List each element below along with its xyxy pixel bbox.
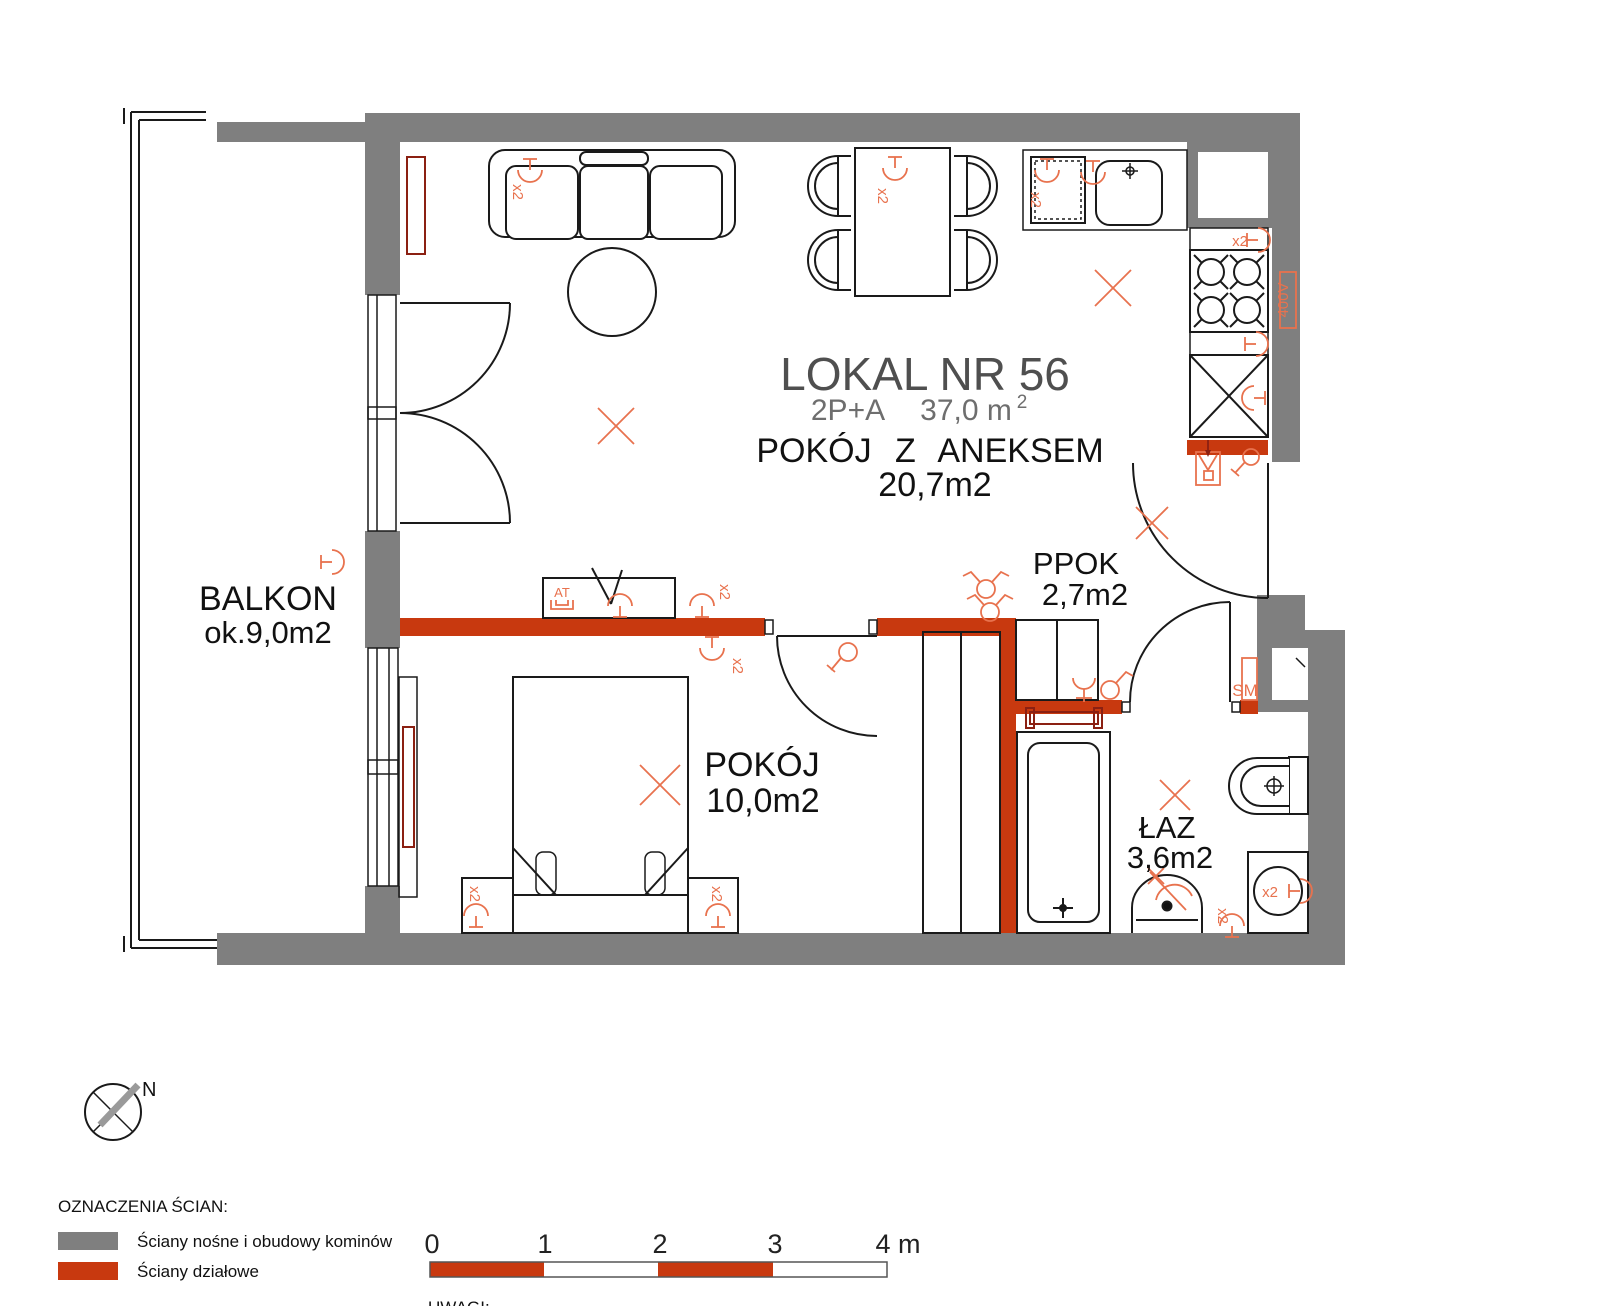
socket-icon (321, 550, 344, 574)
junction-icon (967, 595, 1013, 621)
socket-label: x2 (716, 584, 733, 600)
burner-icon (1230, 293, 1264, 327)
room-label-balkon: BALKON (199, 580, 337, 618)
scale-segment (658, 1262, 773, 1277)
unit-area-sup: 2 (1017, 392, 1028, 413)
radiator-bedroom (399, 677, 417, 897)
light-point-icon (1136, 507, 1168, 539)
socket-icon (1245, 332, 1268, 356)
radiator-bathroom (1026, 708, 1102, 728)
room-area-pokoj: 10,0m2 (706, 782, 819, 820)
socket-label: x2 (1262, 884, 1278, 901)
bed (513, 677, 688, 933)
room-area-ppok: 2,7m2 (1042, 577, 1128, 612)
room-area-aneks: 20,7m2 (878, 466, 991, 504)
light-point-icon (1095, 270, 1131, 306)
legend-swatch-partition (58, 1262, 118, 1280)
double-socket-icon (690, 594, 714, 617)
socket-label: x2 (1232, 233, 1248, 250)
scale-tick-3: 3 (767, 1229, 782, 1259)
balcony-railing (124, 108, 217, 952)
notes-heading: UWAGI: (428, 1298, 490, 1306)
floor-plan-page: x2 x2 x2 x2 x2 x2 x2 x2 x2 x2 400V SM AT… (0, 0, 1608, 1306)
bathtub (1017, 732, 1110, 933)
double-socket-icon (1035, 159, 1059, 182)
coffee-table (568, 248, 656, 336)
power-400v-label: 400V (1275, 282, 1292, 317)
socket-label: x2 (1027, 192, 1044, 208)
fridge (1190, 355, 1268, 437)
double-socket-icon (700, 637, 724, 660)
junction-icon (1101, 672, 1133, 699)
washbasin (1132, 875, 1202, 933)
junction-icon (963, 572, 1009, 598)
radiator-living (407, 157, 425, 254)
smoke-detector-label: SM (1232, 681, 1258, 700)
room-area-balkon: ok.9,0m2 (204, 615, 332, 650)
compass: N (85, 1079, 156, 1140)
scale-tick-2: 2 (652, 1229, 667, 1259)
balcony-door (368, 295, 510, 531)
dining-set (808, 148, 997, 296)
room-area-laz: 3,6m2 (1127, 840, 1213, 875)
compass-north-label: N (142, 1079, 156, 1101)
room-label-ppok: PPOK (1033, 546, 1119, 581)
socket-label: x2 (1214, 908, 1231, 924)
lamp-point-icon (1073, 678, 1095, 702)
room-label-aneks: POKÓJ Z ANEKSEM (756, 432, 1103, 470)
entrance-door (1133, 463, 1268, 598)
washing-machine (1248, 852, 1308, 933)
scale-segment (430, 1262, 544, 1277)
kitchen-counter-segment (1190, 332, 1268, 355)
scale-bar: 0 1 2 3 4 m (424, 1229, 920, 1277)
kitchen-sink (1096, 161, 1162, 225)
room-label-pokoj: POKÓJ (704, 746, 819, 784)
floor-plan-svg: x2 x2 x2 x2 x2 x2 x2 x2 x2 x2 400V SM AT… (0, 0, 1608, 1306)
dining-table (855, 148, 950, 296)
scale-tick-4: 4 m (875, 1229, 920, 1259)
dining-chair (954, 230, 997, 290)
light-point-icon (1160, 780, 1190, 810)
stove (1190, 228, 1268, 332)
legend-label-load-bearing: Ściany nośne i obudowy kominów (137, 1232, 393, 1251)
socket-label: x2 (708, 886, 725, 902)
bedroom-window (368, 648, 398, 886)
dining-chair (808, 156, 851, 216)
burner-icon (1230, 255, 1264, 289)
socket-label: x2 (466, 886, 483, 902)
light-point-icon (598, 408, 634, 444)
switch-icon (827, 643, 857, 672)
socket-label: x2 (509, 184, 526, 200)
legend-heading: OZNACZENIA ŚCIAN: (58, 1197, 228, 1216)
scale-tick-1: 1 (537, 1229, 552, 1259)
socket-label: x2 (729, 658, 746, 674)
scale-tick-0: 0 (424, 1229, 439, 1259)
bathroom-door (1130, 602, 1230, 702)
unit-area: 37,0 m (920, 394, 1012, 427)
burner-icon (1194, 255, 1228, 289)
legend-swatch-load-bearing (58, 1232, 118, 1250)
burner-icon (1194, 293, 1228, 327)
dishwasher (1031, 157, 1085, 223)
toilet (1229, 757, 1308, 814)
antenna-label: AT (554, 585, 570, 600)
double-socket-icon (1247, 228, 1270, 252)
dining-chair (954, 156, 997, 216)
legend-label-partition: Ściany działowe (137, 1262, 259, 1281)
bedroom-door (777, 636, 877, 736)
socket-label: x2 (874, 188, 891, 204)
legend: OZNACZENIA ŚCIAN: Ściany nośne i obudowy… (58, 1197, 393, 1281)
unit-type: 2P+A (811, 394, 885, 427)
dining-chair (808, 230, 851, 290)
wardrobe-bedroom (923, 632, 1000, 933)
